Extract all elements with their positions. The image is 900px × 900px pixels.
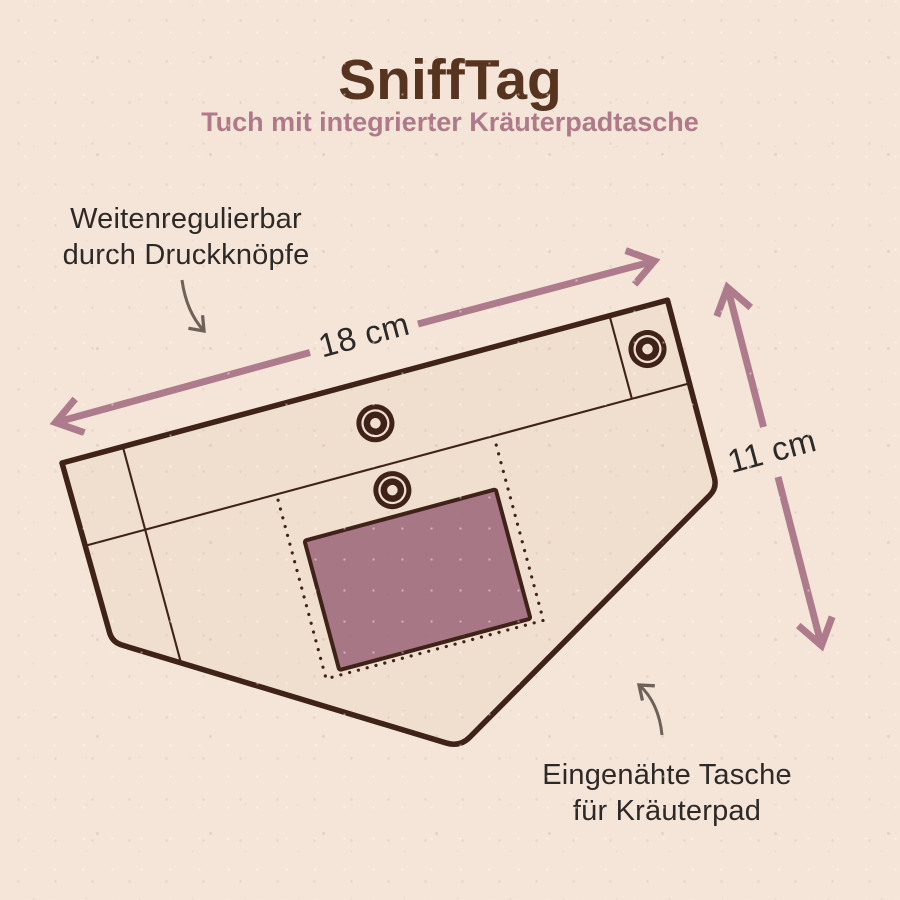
sewn-pocket-label: Eingenähte Tasche für Kräuterpad: [514, 757, 820, 829]
page-title: SniffTag: [0, 52, 900, 109]
snap-adjustable-label: Weitenregulierbar durch Druckknöpfe: [33, 201, 339, 273]
bandana-cloth: [62, 300, 765, 824]
pointer-arrow-icon: [639, 685, 662, 735]
infographic-canvas: SniffTag Tuch mit integrierter Kräuterpa…: [0, 0, 900, 900]
pointer-arrow-icon: [182, 280, 204, 331]
page-subtitle: Tuch mit integrierter Kräuterpadtasche: [0, 108, 900, 138]
